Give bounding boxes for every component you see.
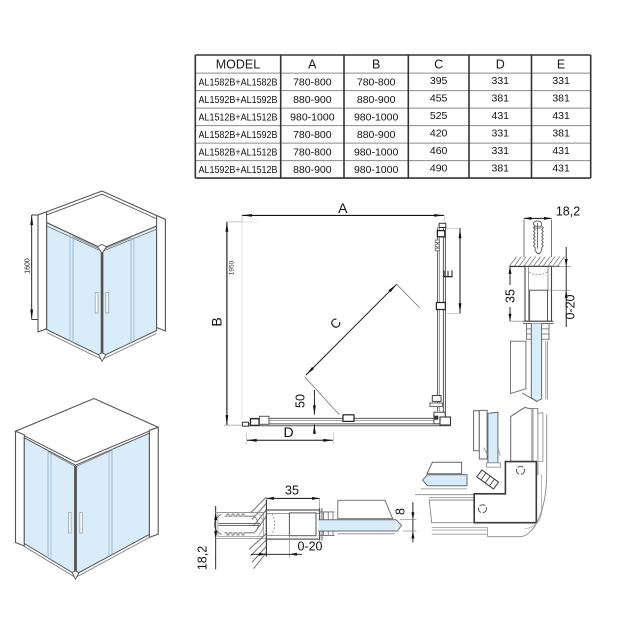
svg-text:880-900: 880-900 xyxy=(357,94,396,106)
svg-text:A: A xyxy=(338,200,348,216)
svg-text:D: D xyxy=(496,58,505,72)
svg-text:880-900: 880-900 xyxy=(293,94,332,106)
svg-text:AL1512B+AL1512B: AL1512B+AL1512B xyxy=(199,112,278,124)
svg-text:A: A xyxy=(308,58,317,72)
svg-text:431: 431 xyxy=(491,110,509,122)
svg-text:AL1582B+AL1592B: AL1582B+AL1592B xyxy=(199,129,278,141)
svg-text:18,2: 18,2 xyxy=(196,546,210,570)
svg-text:0-20: 0-20 xyxy=(564,294,578,319)
svg-text:1950: 1950 xyxy=(229,260,236,275)
svg-text:331: 331 xyxy=(491,145,509,157)
svg-text:E: E xyxy=(441,269,456,278)
svg-text:AL1582B+AL1512B: AL1582B+AL1512B xyxy=(199,147,278,159)
svg-text:50: 50 xyxy=(294,394,308,408)
svg-text:460: 460 xyxy=(430,145,448,157)
svg-text:E: E xyxy=(557,58,565,72)
svg-text:18,2: 18,2 xyxy=(556,205,580,219)
svg-text:381: 381 xyxy=(552,128,570,140)
svg-text:331: 331 xyxy=(491,128,509,140)
svg-text:35: 35 xyxy=(285,484,299,498)
svg-text:C: C xyxy=(434,58,443,72)
svg-text:381: 381 xyxy=(491,163,509,175)
svg-text:B: B xyxy=(209,317,225,326)
svg-text:AL1592B+AL1512B: AL1592B+AL1512B xyxy=(199,164,278,176)
svg-text:980-1000: 980-1000 xyxy=(290,112,335,124)
svg-text:1600: 1600 xyxy=(25,258,32,274)
svg-text:420: 420 xyxy=(430,128,448,140)
svg-text:381: 381 xyxy=(491,93,509,105)
svg-text:0-20: 0-20 xyxy=(297,540,322,554)
svg-text:780-800: 780-800 xyxy=(293,147,332,159)
svg-text:780-800: 780-800 xyxy=(293,77,332,89)
svg-text:AL1582B+AL1582B: AL1582B+AL1582B xyxy=(199,77,278,89)
svg-text:431: 431 xyxy=(552,145,570,157)
svg-text:980-1000: 980-1000 xyxy=(354,112,399,124)
svg-text:AL1592B+AL1592B: AL1592B+AL1592B xyxy=(199,94,278,106)
svg-text:880-900: 880-900 xyxy=(357,129,396,141)
svg-text:880-900: 880-900 xyxy=(293,164,332,176)
svg-text:8: 8 xyxy=(394,508,408,515)
svg-text:B: B xyxy=(372,58,380,72)
svg-text:331: 331 xyxy=(552,75,570,87)
svg-text:490: 490 xyxy=(430,163,448,175)
svg-text:980-1000: 980-1000 xyxy=(354,147,399,159)
svg-text:331: 331 xyxy=(491,75,509,87)
svg-text:D: D xyxy=(283,424,293,440)
svg-text:525: 525 xyxy=(430,110,448,122)
svg-text:MODEL: MODEL xyxy=(216,58,261,72)
svg-text:780-800: 780-800 xyxy=(357,77,396,89)
svg-text:980-1000: 980-1000 xyxy=(354,164,399,176)
svg-text:395: 395 xyxy=(430,75,448,87)
svg-text:431: 431 xyxy=(552,163,570,175)
svg-text:381: 381 xyxy=(552,93,570,105)
svg-text:455: 455 xyxy=(430,93,448,105)
svg-text:35: 35 xyxy=(504,289,518,303)
svg-text:780-800: 780-800 xyxy=(293,129,332,141)
svg-text:431: 431 xyxy=(552,110,570,122)
